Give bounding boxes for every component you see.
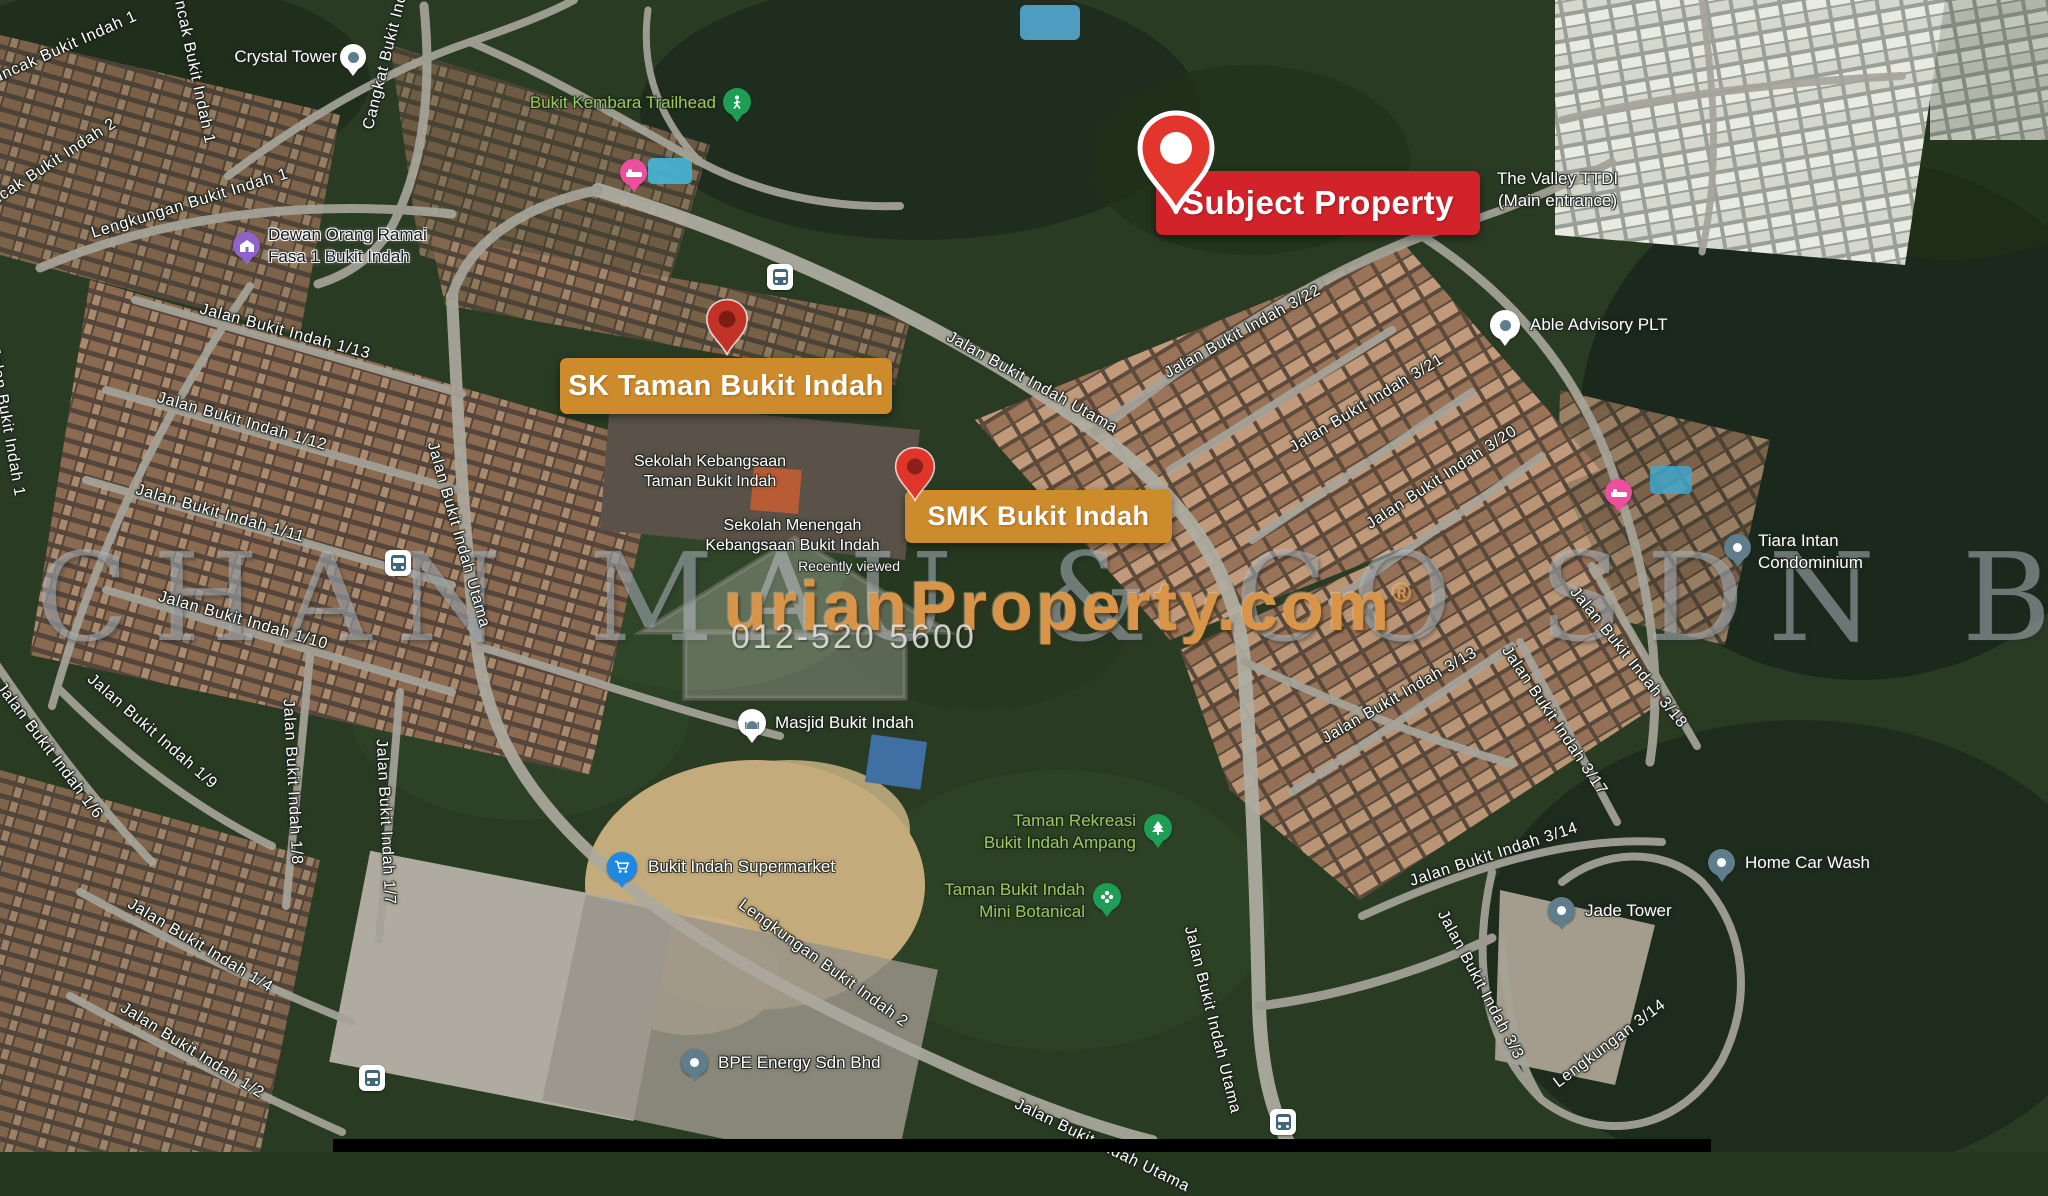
valley-line2: (Main entrance) — [1470, 190, 1645, 212]
botanical-line2: Mini Botanical — [885, 901, 1085, 923]
dewan-line1: Dewan Orang Ramai — [268, 224, 427, 246]
able-advisory-poi-icon[interactable] — [1490, 310, 1520, 340]
home-car-wash-poi-icon[interactable] — [1708, 849, 1735, 876]
rekreasi-line1: Taman Rekreasi — [936, 810, 1136, 832]
jade-tower-label[interactable]: Jade Tower — [1585, 900, 1672, 922]
smk-school-pin-icon — [888, 446, 942, 502]
lodging-icon[interactable] — [620, 159, 647, 186]
poi-dot-icon — [1500, 320, 1511, 331]
bus-glyph-icon — [773, 269, 788, 285]
letterbox-bar — [333, 1139, 1711, 1152]
subject-property-pin-icon — [1126, 110, 1226, 214]
lodging-icon[interactable] — [1605, 479, 1632, 506]
smk-bukit-indah-banner: SMK Bukit Indah — [905, 490, 1172, 543]
poi-dot-icon — [1557, 906, 1566, 915]
tree-glyph-icon — [1152, 821, 1164, 835]
able-advisory-label[interactable]: Able Advisory PLT — [1530, 314, 1668, 336]
bed-glyph-icon — [626, 168, 642, 178]
valley-ttdi-label[interactable]: The Valley TTDI (Main entrance) — [1470, 168, 1645, 212]
sekolah-kebangsaan-label[interactable]: Sekolah Kebangsaan Taman Bukit Indah — [620, 452, 800, 492]
phone-watermark: 012-520 5600 — [731, 618, 977, 657]
botanical-flower-icon[interactable] — [1093, 883, 1121, 911]
tiara-line2: Condominium — [1758, 552, 1863, 574]
sk-school-line1: Sekolah Kebangsaan — [620, 452, 800, 472]
tiara-intan-poi-icon[interactable] — [1724, 534, 1751, 561]
botanical-line1: Taman Bukit Indah — [885, 879, 1085, 901]
poi-dot-icon — [690, 1058, 699, 1067]
smk-school-line2: Kebangsaan Bukit Indah — [685, 536, 900, 556]
bus-stop-icon[interactable] — [359, 1065, 385, 1091]
supermarket-label[interactable]: Bukit Indah Supermarket — [648, 856, 835, 878]
sk-school-line2: Taman Bukit Indah — [620, 472, 800, 492]
building-glyph-icon — [240, 240, 254, 252]
sk-taman-bukit-indah-banner: SK Taman Bukit Indah — [560, 358, 892, 414]
bpe-energy-label[interactable]: BPE Energy Sdn Bhd — [718, 1052, 881, 1074]
home-car-wash-label[interactable]: Home Car Wash — [1745, 852, 1870, 874]
bus-stop-icon[interactable] — [1270, 1109, 1296, 1135]
sk-school-pin-icon — [699, 296, 755, 358]
hiker-glyph-icon — [730, 95, 744, 109]
bus-glyph-icon — [365, 1070, 380, 1086]
bus-glyph-icon — [391, 555, 406, 571]
bed-glyph-icon — [1611, 488, 1627, 498]
bpe-energy-poi-icon[interactable] — [681, 1049, 708, 1076]
sekolah-menengah-label[interactable]: Sekolah Menengah Kebangsaan Bukit Indah … — [685, 516, 900, 576]
tiara-line1: Tiara Intan — [1758, 530, 1863, 552]
poi-dot-icon — [1733, 543, 1742, 552]
masjid-label[interactable]: Masjid Bukit Indah — [775, 712, 914, 734]
tiara-intan-label[interactable]: Tiara Intan Condominium — [1758, 530, 1863, 574]
bus-stop-icon[interactable] — [385, 550, 411, 576]
masjid-poi-icon[interactable] — [738, 709, 766, 737]
supermarket-poi-icon[interactable] — [607, 852, 637, 882]
cart-glyph-icon — [614, 860, 630, 874]
bus-glyph-icon — [1276, 1114, 1291, 1130]
flower-glyph-icon — [1101, 891, 1113, 903]
park-tree-icon[interactable] — [1144, 814, 1172, 842]
registered-mark: ® — [1392, 578, 1414, 608]
bukit-kembara-trailhead-label[interactable]: Bukit Kembara Trailhead — [508, 92, 716, 114]
mini-botanical-label[interactable]: Taman Bukit Indah Mini Botanical — [885, 879, 1085, 923]
crystal-tower-label[interactable]: Crystal Tower — [187, 46, 337, 68]
trailhead-hiker-icon[interactable] — [723, 88, 751, 116]
dewan-line2: Fasa 1 Bukit Indah — [268, 246, 427, 268]
rekreasi-line2: Bukit Indah Ampang — [936, 832, 1136, 854]
satellite-map: Puncak Bukit Indah 2 Puncak Bukit Indah … — [0, 0, 2048, 1152]
smk-school-line1: Sekolah Menengah — [685, 516, 900, 536]
poi-dot-icon — [348, 52, 359, 63]
taman-rekreasi-label[interactable]: Taman Rekreasi Bukit Indah Ampang — [936, 810, 1136, 854]
bus-stop-icon[interactable] — [767, 264, 793, 290]
community-hall-icon[interactable] — [233, 232, 260, 259]
valley-line1: The Valley TTDI — [1470, 168, 1645, 190]
mosque-glyph-icon — [745, 717, 759, 729]
jade-tower-poi-icon[interactable] — [1548, 897, 1575, 924]
dewan-orang-ramai-label[interactable]: Dewan Orang Ramai Fasa 1 Bukit Indah — [268, 224, 427, 268]
poi-dot-icon — [1717, 858, 1726, 867]
crystal-tower-poi-icon[interactable] — [340, 44, 366, 70]
recently-viewed-note: Recently viewed — [685, 556, 900, 576]
